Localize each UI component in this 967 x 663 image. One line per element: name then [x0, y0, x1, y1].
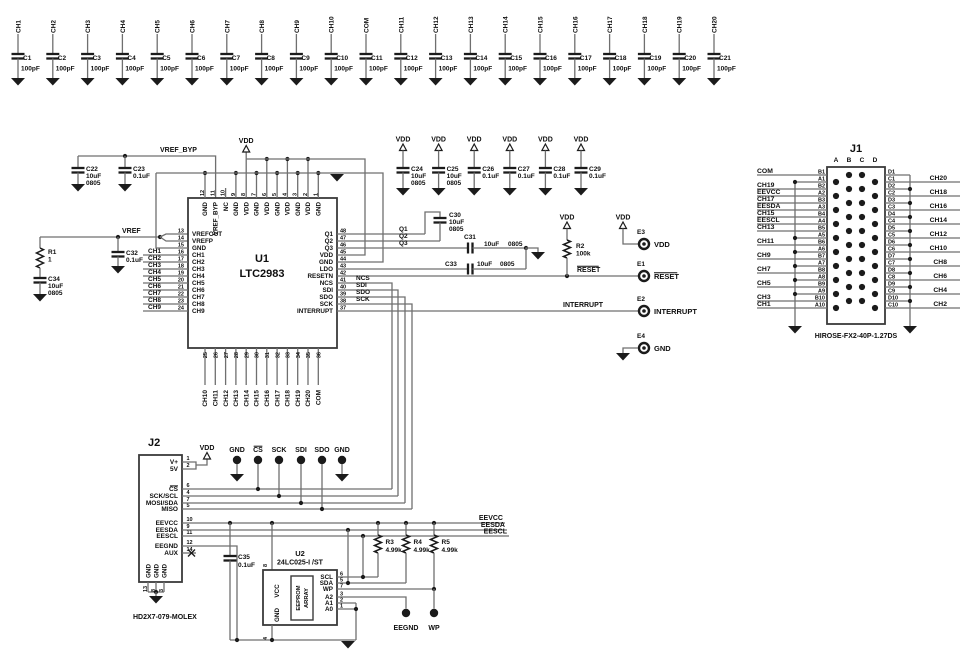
pin-name: CH4: [192, 273, 205, 280]
contact-dot: [833, 305, 839, 311]
contact-dot: [846, 200, 852, 206]
resistor-R1: [37, 248, 44, 268]
label: 0.1uF: [238, 562, 255, 569]
pin-name: CS: [169, 486, 179, 493]
label: 0.1uF: [482, 173, 499, 180]
net-label: COM: [757, 168, 773, 175]
label: R4: [414, 539, 423, 546]
junction-dot: [320, 507, 324, 511]
pin-number: B3: [818, 198, 825, 204]
junction-dot: [908, 243, 912, 247]
connector-J2: [139, 455, 182, 582]
pin-name: CH5: [192, 280, 205, 287]
cap-ref: C18: [615, 55, 627, 62]
ground-symbol: [359, 78, 373, 86]
cap-ref: C11: [371, 55, 383, 62]
cap-value: 100pF: [647, 66, 666, 73]
pin-number: 28: [234, 352, 240, 358]
vdd-arrow: [400, 144, 407, 151]
pin-number: 27: [224, 352, 230, 358]
pin-number: C4: [888, 219, 896, 225]
channel-label: CH15: [538, 16, 545, 33]
pin-name: 5V: [170, 466, 179, 473]
wire: [337, 290, 398, 496]
label: C29: [589, 166, 601, 173]
label: ARRAY: [304, 588, 310, 608]
pin-number: B9: [818, 282, 825, 288]
pin-name: Q3: [325, 245, 334, 252]
net-label: CH9: [757, 252, 771, 259]
pin-name: VREFP: [192, 238, 213, 245]
contact-dot: [846, 242, 852, 248]
pin-number: B4: [818, 212, 826, 218]
label: C23: [133, 166, 145, 173]
channel-label: CH5: [155, 20, 162, 33]
turret-center: [642, 309, 646, 313]
vdd-label: VDD: [560, 215, 575, 222]
ground-symbol: [81, 78, 95, 86]
vdd-label: VDD: [467, 137, 482, 144]
pin-number: C3: [888, 205, 895, 211]
channel-label: CH12: [433, 16, 440, 33]
pin-name: CH3: [192, 266, 205, 273]
schematic-page: CH1C1100pFCH2C2100pFCH3C3100pFCH4C4100pF…: [0, 0, 967, 663]
vdd-arrow: [506, 144, 513, 151]
testpoint-label: CS: [253, 447, 263, 454]
cap-value: 100pF: [473, 66, 492, 73]
label: C33: [445, 261, 457, 268]
wire: [337, 297, 405, 503]
ground-symbol: [335, 474, 349, 482]
pin-name: INTERRUPT: [297, 308, 333, 315]
chip-ref-U1: U1: [255, 253, 269, 265]
net-label: CH14: [930, 217, 948, 224]
label: C24: [411, 166, 423, 173]
pin-name: GND: [254, 202, 261, 216]
pin-name: GND: [154, 564, 161, 578]
vdd-arrow: [471, 144, 478, 151]
label: C35: [238, 554, 250, 561]
junction-dot: [270, 638, 274, 642]
pin-name: SDI: [323, 287, 334, 294]
pin-number: 4: [187, 490, 191, 496]
label: E3: [637, 229, 645, 236]
label: 4.99k: [442, 547, 459, 554]
net-label: CH16: [930, 203, 948, 210]
ground-symbol: [71, 184, 85, 192]
pin-name: VCC: [274, 584, 281, 598]
net-label: CH8: [148, 297, 161, 304]
cap-value: 100pF: [334, 66, 353, 73]
pin-number: A2: [818, 191, 825, 197]
pin-number: 10: [187, 517, 193, 523]
label: 0.1uF: [126, 257, 143, 264]
junction-dot: [235, 638, 239, 642]
net-label: EEVCC: [757, 189, 781, 196]
cap-ref: C20: [684, 55, 696, 62]
ground-symbol: [788, 326, 802, 334]
pin-name: EESCL: [156, 533, 178, 540]
ground-symbol: [672, 78, 686, 86]
cap-value: 100pF: [613, 66, 632, 73]
junction-dot: [908, 257, 912, 261]
net-label: CH4: [933, 287, 947, 294]
cap-value: 100pF: [439, 66, 458, 73]
pin-name: VDD: [285, 202, 292, 216]
junction-dot: [793, 278, 797, 282]
pin-number: A3: [818, 205, 825, 211]
label: 4.99k: [386, 547, 403, 554]
net-label: CH17: [274, 390, 281, 407]
pin-number: C2: [888, 191, 895, 197]
label: 10uF: [48, 283, 63, 290]
vdd-label: VDD: [431, 137, 446, 144]
net-label: CH16: [264, 390, 271, 407]
net-label: CH10: [930, 245, 948, 252]
cap-value: 100pF: [56, 66, 75, 73]
pin-number: D8: [888, 268, 895, 274]
net-label: CH6: [148, 283, 161, 290]
contact-dot: [846, 298, 852, 304]
cap-ref: C12: [406, 55, 418, 62]
cap-value: 100pF: [682, 66, 701, 73]
junction-dot: [361, 575, 365, 579]
label: 100k: [576, 251, 591, 258]
column-header: D: [873, 157, 878, 164]
pin-name: GND: [274, 608, 281, 622]
contact-dot: [859, 256, 865, 262]
vdd-label: VDD: [396, 137, 411, 144]
contact-dot: [872, 193, 878, 199]
pin-number: B7: [818, 254, 825, 260]
channel-label: CH4: [120, 20, 127, 33]
label: NCS: [356, 275, 370, 282]
pin-number: A8: [818, 275, 825, 281]
label: 0805: [86, 180, 101, 187]
ground-symbol: [533, 78, 547, 86]
pin-number: C9: [888, 289, 895, 295]
vdd-arrow-j2: [204, 453, 211, 460]
pin-name: GND: [319, 259, 333, 266]
vdd-arrow-u1: [243, 146, 250, 153]
ground-symbol: [33, 294, 47, 302]
contact-dot: [859, 242, 865, 248]
net-label: CH20: [930, 175, 948, 182]
vdd-label: VDD: [616, 215, 631, 222]
label: 0.1uF: [133, 173, 150, 180]
turret-net-E2: INTERRUPT: [654, 307, 697, 316]
ground-symbol: [255, 78, 269, 86]
pin-name: CH9: [192, 308, 205, 315]
pin-name: Q2: [325, 238, 334, 245]
vdd-arrow-e3: [620, 222, 627, 229]
contact-dot: [872, 221, 878, 227]
pin-number: D4: [888, 212, 896, 218]
label: 0805: [48, 290, 63, 297]
pin-number: C6: [888, 247, 895, 253]
connector-part-J2: HD2X7-079-MOLEX: [133, 614, 197, 621]
pin-name: NC: [223, 202, 230, 212]
contact-dot: [859, 200, 865, 206]
net-label: EESDA: [757, 203, 781, 210]
channel-label: CH6: [190, 20, 197, 33]
ground-symbol: [115, 78, 129, 86]
channel-label: CH19: [677, 16, 684, 33]
vdd-label: VDD: [239, 138, 254, 145]
pin-name: EEVCC: [156, 520, 179, 527]
pin-name: GND: [202, 202, 209, 216]
net-label: CH19: [295, 390, 302, 407]
ground-symbol: [467, 188, 481, 196]
label: 0805: [447, 180, 462, 187]
contact-dot: [833, 249, 839, 255]
label: C31: [464, 234, 476, 241]
turret-net-E4: GND: [654, 344, 671, 353]
net-label: CH11: [213, 390, 220, 407]
cap-value: 100pF: [21, 66, 40, 73]
channel-label: CH9: [294, 20, 301, 33]
junction-dot: [908, 285, 912, 289]
connector-part-J1: HIROSE-FX2-40P-1.27DS: [815, 333, 898, 340]
pin-name: RESETN: [307, 273, 333, 280]
vdd-arrow: [542, 144, 549, 151]
contact-dot: [859, 284, 865, 290]
pin-number: 45: [340, 250, 346, 256]
junction-dot: [908, 299, 912, 303]
contact-dot: [859, 214, 865, 220]
ground-symbol: [429, 78, 443, 86]
pin-number: 13: [178, 229, 184, 235]
pin-number: C5: [888, 233, 895, 239]
pin-number: A5: [818, 233, 825, 239]
testpoint-label: SCK: [272, 447, 287, 454]
pin-number: B1: [818, 170, 825, 176]
channel-label: CH7: [224, 20, 231, 33]
pin-name: GND: [295, 202, 302, 216]
channel-label: CH11: [398, 16, 405, 33]
pin-number: 31: [265, 352, 271, 358]
net-label: CH8: [933, 259, 947, 266]
label: SDO: [356, 289, 370, 296]
pin-name: GND: [233, 202, 240, 216]
label: C34: [48, 276, 60, 283]
pin-number: B8: [818, 268, 825, 274]
chip-part-U1: LTC2983: [239, 268, 284, 280]
label: 0805: [411, 180, 426, 187]
pin-name: CH7: [192, 294, 205, 301]
turret-center: [642, 274, 646, 278]
pin-name: VDD: [264, 202, 271, 216]
testpoint-CS-1: [254, 456, 262, 464]
pin-number: A7: [818, 261, 825, 267]
vdd-arrow: [435, 144, 442, 151]
pin-name: GND: [316, 202, 323, 216]
ground-symbol: [637, 78, 651, 86]
column-header: C: [860, 157, 865, 164]
net-label-reset: RESET: [577, 267, 601, 274]
ground-symbol: [46, 78, 60, 86]
testpoint-SCK-2: [275, 456, 283, 464]
label: C26: [482, 166, 494, 173]
net-label-eescl: EESCL: [484, 529, 508, 536]
net-label: CH3: [148, 262, 161, 269]
resistor-R5: [431, 535, 438, 553]
pin-number: 14: [178, 236, 185, 242]
net-label: CH18: [285, 390, 292, 407]
wire: [526, 248, 538, 269]
cap-ref: C9: [301, 55, 310, 62]
pin-name: MISO: [161, 506, 178, 513]
pin-name: GND: [146, 564, 153, 578]
ground-symbol: [498, 78, 512, 86]
connector-J1: [827, 167, 885, 324]
label: R3: [386, 539, 395, 546]
ground-symbol: [341, 641, 355, 649]
pin-number: D2: [888, 184, 895, 190]
junction-dot: [793, 180, 797, 184]
pin-name: AUX: [164, 550, 178, 557]
cap-ref: C13: [441, 55, 453, 62]
pin-number: 11: [210, 190, 216, 196]
cap-ref: C15: [510, 55, 522, 62]
pin-name: VDD: [243, 202, 250, 216]
junction-dot: [346, 581, 350, 585]
ground-symbol: [568, 78, 582, 86]
net-label: CH20: [305, 390, 312, 407]
label: 10uF: [86, 173, 101, 180]
cap-value: 100pF: [508, 66, 527, 73]
pin-number: C1: [888, 177, 895, 183]
cap-ref: C1: [23, 55, 32, 62]
ground-symbol: [903, 326, 917, 334]
channel-label: CH14: [503, 16, 510, 33]
ground-symbol: [574, 188, 588, 196]
channel-label: CH2: [50, 20, 57, 33]
net-label: CH1: [148, 248, 161, 255]
net-label: CH1: [757, 301, 771, 308]
net-label: CH3: [757, 294, 771, 301]
net-label: CH13: [757, 224, 775, 231]
channel-label: CH1: [16, 20, 23, 33]
pin-name: CH1: [192, 252, 205, 259]
ground-symbol: [503, 188, 517, 196]
cap-ref: C21: [719, 55, 731, 62]
pin-name: GND: [162, 564, 169, 578]
contact-dot: [833, 179, 839, 185]
pin-name: CH6: [192, 287, 205, 294]
channel-label: CH20: [712, 16, 719, 33]
pin-number: 33: [286, 352, 292, 358]
pin-name: VDD: [320, 252, 334, 259]
contact-dot: [833, 207, 839, 213]
net-label-vref: VREF: [122, 228, 141, 235]
net-label-vref-byp: VREF_BYP: [160, 147, 197, 154]
ground-symbol: [118, 184, 132, 192]
pin-number: D3: [888, 198, 895, 204]
pin-name: NCS: [320, 280, 333, 287]
cap-value: 100pF: [578, 66, 597, 73]
pin-name: Q1: [325, 231, 334, 238]
contact-dot: [872, 277, 878, 283]
ground-symbol: [11, 78, 25, 86]
contact-dot: [833, 235, 839, 241]
label: 10uF: [484, 241, 499, 248]
pin-number: 44: [340, 257, 347, 263]
contact-dot: [859, 228, 865, 234]
column-header: A: [834, 157, 839, 164]
cap-ref: C7: [232, 55, 241, 62]
testpoint-GND-5: [338, 456, 346, 464]
channel-label: CH17: [607, 16, 614, 33]
cap-ref: C16: [545, 55, 557, 62]
contact-dot: [833, 277, 839, 283]
pin-number: D6: [888, 240, 895, 246]
label: 0805: [500, 261, 515, 268]
pin-name: A0: [325, 606, 334, 613]
cap-value: 100pF: [125, 66, 144, 73]
pin-number: 6: [187, 483, 190, 489]
contact-dot: [859, 298, 865, 304]
junction-dot: [793, 292, 797, 296]
pin-number: A9: [818, 289, 825, 295]
net-label-eevcc: EEVCC: [479, 515, 503, 522]
label: SCK: [356, 296, 370, 303]
channel-label: CH13: [468, 16, 475, 33]
net-label: CH11: [757, 238, 774, 245]
pin-number: 1: [187, 456, 190, 462]
contact-dot: [859, 172, 865, 178]
label: C22: [86, 166, 98, 173]
turret-net-E3: VDD: [654, 240, 670, 249]
net-label: CH7: [757, 266, 771, 273]
pin-number: A1: [818, 177, 825, 183]
pin-number: B6: [818, 240, 825, 246]
testpoint-label: SDI: [295, 447, 307, 454]
cap-ref: C17: [580, 55, 592, 62]
label: E2: [637, 296, 645, 303]
net-label: CH18: [930, 189, 948, 196]
channel-label: CH8: [259, 20, 266, 33]
cap-ref: C6: [197, 55, 206, 62]
chip-part-U2: 24LC025-I /ST: [277, 560, 324, 567]
cap-value: 100pF: [543, 66, 562, 73]
testpoint-GND-0: [233, 456, 241, 464]
pin-number: B10: [815, 296, 825, 302]
wire: [337, 304, 412, 509]
label: C27: [518, 166, 530, 173]
contact-dot: [872, 263, 878, 269]
net-label: CH9: [148, 304, 161, 311]
net-label: CH10: [202, 390, 209, 407]
testpoint-EEGND: [402, 609, 410, 617]
pin-number: 34: [296, 351, 302, 358]
contact-dot: [872, 291, 878, 297]
label: 0805: [449, 226, 464, 233]
junction-dot: [908, 215, 912, 219]
pin-name: VDD: [305, 202, 312, 216]
contact-dot: [846, 186, 852, 192]
pin-number: D1: [888, 170, 895, 176]
cap-ref: C8: [267, 55, 276, 62]
cap-value: 100pF: [299, 66, 318, 73]
testpoint-label: SDO: [314, 447, 330, 454]
net-label-interrupt: INTERRUPT: [563, 302, 604, 309]
pin-number: 8: [263, 564, 269, 567]
label: C25: [447, 166, 459, 173]
ground-symbol: [330, 174, 344, 182]
label: 10uF: [449, 219, 464, 226]
net-label: CH15: [757, 210, 775, 217]
